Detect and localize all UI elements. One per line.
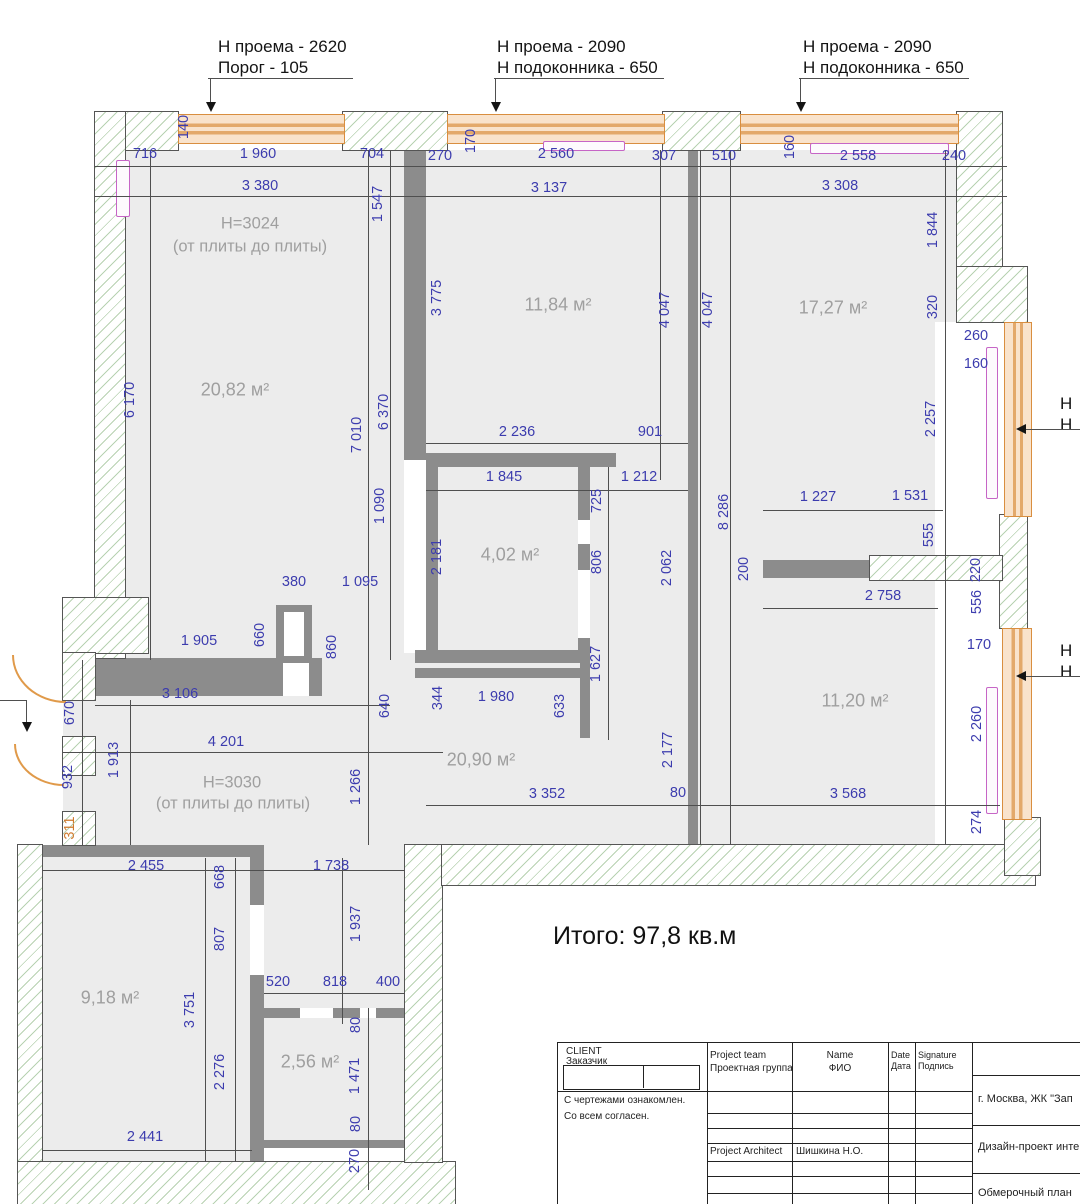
annotation-line: Порог - 105 [218,57,347,78]
dimension-label: 240 [942,148,966,164]
dimension-label: 3 352 [529,786,565,802]
dimension-label: 660 [252,623,268,647]
dimension-label: 932 [60,765,76,789]
annotation-line: Н [1060,393,1072,414]
dimension-label: 4 201 [208,734,244,750]
dimension-label: 3 137 [531,180,567,196]
column-header: Name [792,1050,888,1061]
dimension-label: 2 181 [429,539,445,575]
annotation-line: Н проема - 2090 [803,36,964,57]
dimension-line [368,1008,369,1190]
door-opening [300,1008,333,1018]
dimension-line [608,467,609,740]
room-height-note: Н=3030 [203,774,261,793]
leader-line [800,78,801,104]
window-band [1004,322,1032,517]
title-block-divider [707,1113,972,1114]
dimension-label: 1 547 [370,186,386,222]
interior-wall [264,1008,405,1018]
title-block-divider [707,1176,972,1177]
column-header: Project team [710,1050,766,1061]
dimension-label: 1 845 [486,469,522,485]
title-block: CLIENT Заказчик С чертежами ознакомлен. … [557,1042,1080,1204]
annotation-line: Н проема - 2090 [497,36,658,57]
window-symbol [116,160,130,217]
dimension-label: 320 [925,295,941,319]
dimension-label: 670 [62,701,78,725]
interior-wall [763,560,870,578]
dimension-label: 1 913 [106,742,122,778]
dimension-line [95,196,1007,197]
dimension-label: 400 [376,974,400,990]
room-area-label: 17,27 м² [799,298,867,319]
interior-wall [250,845,264,1162]
window-band [1002,628,1032,820]
title-block-divider [972,1125,1080,1126]
client-signature-box-divider [643,1065,644,1088]
dimension-line [700,805,1000,806]
door-opening [250,905,264,975]
architect-name: Шишкина Н.О. [796,1146,863,1157]
dimension-line [763,510,943,511]
dimension-label: 6 370 [376,394,392,430]
dimension-line [426,805,700,806]
dimension-label: 2 062 [659,550,675,586]
wall-opening [578,520,590,544]
dimension-label: 311 [62,816,78,839]
dimension-label: 1 090 [372,488,388,524]
dimension-label: 7 010 [349,417,365,453]
dimension-label: 140 [176,115,192,139]
leader-arrow [1016,424,1026,434]
room-area-label: 4,02 м² [481,545,539,566]
floor-plan: 20,82 м² Н=3024 (от плиты до плиты) 11,8… [0,0,1080,1204]
dimension-line [82,660,83,845]
room-area-label: 11,20 м² [821,691,888,712]
dimension-label: 806 [589,550,605,574]
dimension-label: 2 276 [212,1054,228,1090]
dimension-label: 160 [782,135,798,159]
dimension-label: 1 738 [313,858,349,874]
dimension-label: 3 775 [429,280,445,316]
dimension-label: 2 560 [538,146,574,162]
leader-line [494,78,664,79]
leader-line [0,700,26,701]
title-block-divider [915,1043,916,1204]
leader-arrow [1016,671,1026,681]
annotation-line: Н подоконника - 650 [497,57,658,78]
title-block-divider [707,1161,972,1162]
dimension-label: 6 170 [122,382,138,418]
dimension-label: 818 [323,974,347,990]
outer-wall [63,653,95,700]
dimension-label: 220 [968,558,984,582]
project-location: г. Москва, ЖК "Зап [978,1093,1073,1105]
window-band [178,114,345,144]
dimension-line [42,1150,252,1151]
door-swing-arc [14,744,64,786]
dimension-label: 3 106 [162,686,198,702]
column-header: Дата [891,1061,911,1071]
dimension-label: 807 [212,927,228,951]
dimension-line [368,150,369,845]
outer-wall [442,845,1035,885]
architect-role: Project Architect [710,1146,782,1157]
room-height-note: (от плиты до плиты) [156,795,310,814]
leader-line [26,700,27,724]
dimension-label: 2 177 [660,732,676,768]
leader-arrow [491,102,501,112]
leader-arrow [22,722,32,732]
dimension-label: 2 455 [128,858,164,874]
annotation-line: Н [1060,414,1072,435]
dimension-label: 8 286 [716,494,732,530]
dimension-label: 716 [133,146,157,162]
agreement-note: С чертежами ознакомлен. [564,1095,685,1106]
column-header: Проектная группа [710,1063,793,1074]
room-area-label: 11,84 м² [524,295,591,316]
room-fill [698,150,1000,322]
dimension-line [95,166,1007,167]
title-block-divider [972,1173,1080,1174]
room-area-label: 2,56 м² [281,1052,339,1073]
dimension-line [130,700,131,845]
dimension-label: 80 [348,1017,364,1033]
column-header: Подпись [918,1061,954,1071]
outer-wall [663,112,740,150]
dimension-label: 3 380 [242,178,278,194]
leader-line [495,78,496,104]
door-swing-arc [12,655,66,703]
outer-wall [1000,515,1027,628]
outer-wall [18,845,42,1204]
dimension-label: 1 095 [342,574,378,590]
dimension-label: 510 [712,148,736,164]
dimension-line [150,152,151,660]
dimension-label: 2 441 [127,1129,163,1145]
interior-wall [42,845,253,857]
title-block-divider [558,1091,972,1092]
interior-wall [426,453,616,467]
opening-annotation: Н проема - 2090 Н подоконника - 650 [497,36,658,78]
dimension-line [235,858,236,1162]
dimension-label: 160 [964,356,988,372]
room-fill [264,1018,405,1140]
dimension-label: 3 751 [182,992,198,1028]
dimension-label: 633 [552,694,568,718]
title-block-divider [972,1075,1080,1076]
dimension-label: 80 [670,785,686,801]
dimension-label: 640 [377,694,393,718]
dimension-label: 380 [282,574,306,590]
leader-arrow [206,102,216,112]
dimension-label: 274 [969,810,985,834]
title-block-divider [707,1043,708,1204]
dimension-label: 4 047 [700,292,716,328]
total-area-label: Итого: 97,8 кв.м [553,922,736,951]
wall-opening [578,570,590,638]
room-area-label: 9,18 м² [81,988,139,1009]
room-fill [42,857,252,1162]
dimension-label: 3 308 [822,178,858,194]
outer-wall [957,267,1027,322]
interior-wall [415,668,580,678]
leader-line [1025,429,1080,430]
dimension-label: 1 844 [925,212,941,248]
dimension-label: 860 [324,635,340,659]
dimension-label: 704 [360,146,384,162]
dimension-label: 901 [638,424,662,440]
window-symbol [986,687,998,814]
dimension-label: 1 627 [588,646,604,682]
leader-line [208,78,353,79]
outer-wall [343,112,447,150]
dimension-label: 1 531 [892,488,928,504]
dimension-label: 170 [967,637,991,653]
client-signature-box [563,1065,700,1090]
dimension-label: 270 [347,1149,363,1173]
outer-wall [1005,818,1040,875]
title-block-divider [888,1043,889,1204]
column-header: Date [891,1050,910,1060]
leader-line [1025,676,1080,677]
dimension-label: 520 [266,974,290,990]
dimension-label: 170 [463,129,479,153]
room-area-label: 20,82 м² [201,380,269,401]
title-block-divider [972,1043,973,1204]
project-name: Дизайн-проект инте [978,1141,1079,1153]
window-band [740,114,959,144]
leader-line [799,78,969,79]
dimension-label: 725 [589,489,605,513]
window-symbol [810,143,949,154]
title-block-divider [707,1193,972,1194]
dimension-label: 2 260 [969,706,985,742]
dimension-label: 1 227 [800,489,836,505]
dimension-label: 260 [964,328,988,344]
window-band [447,114,665,144]
dimension-label: 1 937 [348,906,364,942]
dimension-line [95,705,390,706]
column-header: Signature [918,1050,957,1060]
dimension-line [700,150,701,845]
dimension-label: 555 [921,523,937,547]
dimension-label: 80 [348,1116,364,1132]
dimension-label: 1 905 [181,633,217,649]
dimension-label: 3 568 [830,786,866,802]
dimension-line [763,608,938,609]
dimension-line [426,490,688,491]
dimension-label: 1 960 [240,146,276,162]
outer-wall [63,598,148,653]
column-header: ФИО [792,1063,888,1074]
dimension-label: 1 471 [347,1058,363,1094]
dimension-label: 556 [969,590,985,614]
room-area-label: 20,90 м² [447,750,515,771]
dimension-label: 2 558 [840,148,876,164]
agreement-note: Со всем согласен. [564,1111,649,1122]
dimension-label: 2 257 [923,401,939,437]
interior-wall [264,1140,405,1148]
room-fill [698,322,935,845]
dimension-label: 4 047 [657,292,673,328]
door-opening [283,658,309,696]
sheet-name: Обмерочный план [978,1187,1072,1199]
dimension-line [426,443,688,444]
interior-wall [415,650,590,663]
annotation-line: Н [1060,661,1072,682]
interior-wall [688,150,698,845]
opening-annotation: Н проема - 2620 Порог - 105 [218,36,347,78]
door-leaf [284,612,304,656]
annotation-line: Н подоконника - 650 [803,57,964,78]
title-block-divider [707,1128,972,1129]
room-height-note: Н=3024 [221,215,279,234]
client-label: Заказчик [566,1056,607,1067]
dimension-label: 307 [652,148,676,164]
outer-wall [18,1162,455,1204]
title-block-divider [707,1143,972,1144]
opening-annotation: Н проема - 2090 Н подоконника - 650 [803,36,964,78]
dimension-label: 200 [736,557,752,581]
dimension-label: 344 [430,686,446,710]
dimension-line [945,150,946,845]
dimension-label: 270 [428,148,452,164]
dimension-label: 2 758 [865,588,901,604]
leader-arrow [796,102,806,112]
dimension-label: 2 236 [499,424,535,440]
outer-wall [405,845,442,1162]
dimension-line [264,993,405,994]
dimension-line [205,858,206,1162]
leader-line [210,78,211,104]
dimension-label: 1 980 [478,689,514,705]
annotation-line: Н [1060,640,1072,661]
annotation-line: Н проема - 2620 [218,36,347,57]
dimension-label: 1 266 [348,769,364,805]
dimension-line [342,858,343,1024]
dimension-label: 1 212 [621,469,657,485]
room-height-note: (от плиты до плиты) [173,238,327,257]
dimension-label: 668 [212,865,228,889]
